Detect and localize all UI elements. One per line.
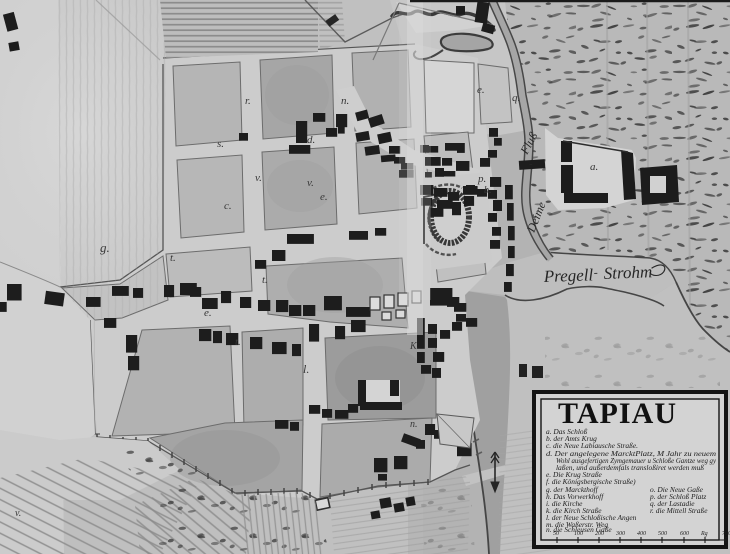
svg-text:500: 500 <box>658 531 667 537</box>
svg-text:50: 50 <box>553 531 559 537</box>
svg-text:300: 300 <box>615 531 625 537</box>
svg-text:700: 700 <box>722 531 730 537</box>
svg-text:400: 400 <box>637 530 646 537</box>
svg-text:100: 100 <box>574 531 583 537</box>
svg-text:r. die Mittell Straße: r. die Mittell Straße <box>650 506 708 515</box>
svg-text:200: 200 <box>595 531 604 537</box>
svg-text:600: 600 <box>680 531 689 537</box>
svg-text:Rg: Rg <box>700 531 708 537</box>
svg-text:TAPIAU: TAPIAU <box>558 397 676 430</box>
